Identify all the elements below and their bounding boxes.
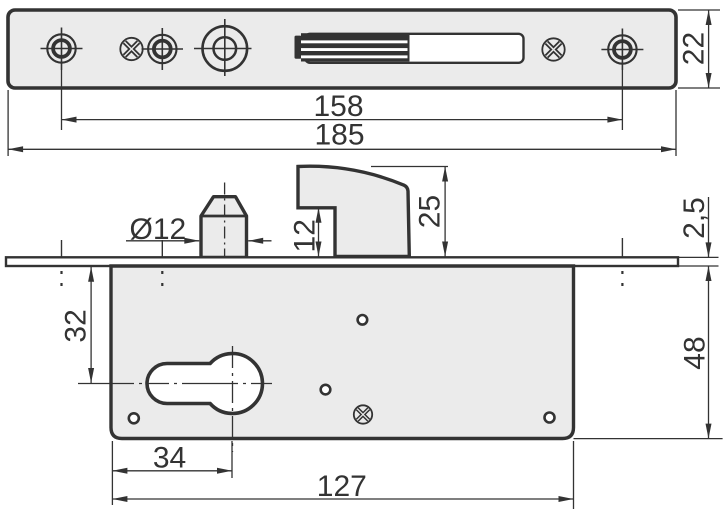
- svg-text:22: 22: [678, 32, 711, 65]
- svg-text:48: 48: [679, 336, 712, 369]
- svg-text:2,5: 2,5: [678, 197, 711, 239]
- svg-text:25: 25: [414, 195, 447, 228]
- svg-text:32: 32: [60, 309, 93, 342]
- svg-text:127: 127: [317, 470, 367, 503]
- svg-text:12: 12: [289, 219, 322, 252]
- svg-text:Ø12: Ø12: [130, 213, 187, 246]
- svg-text:34: 34: [153, 442, 186, 475]
- svg-text:185: 185: [314, 118, 364, 151]
